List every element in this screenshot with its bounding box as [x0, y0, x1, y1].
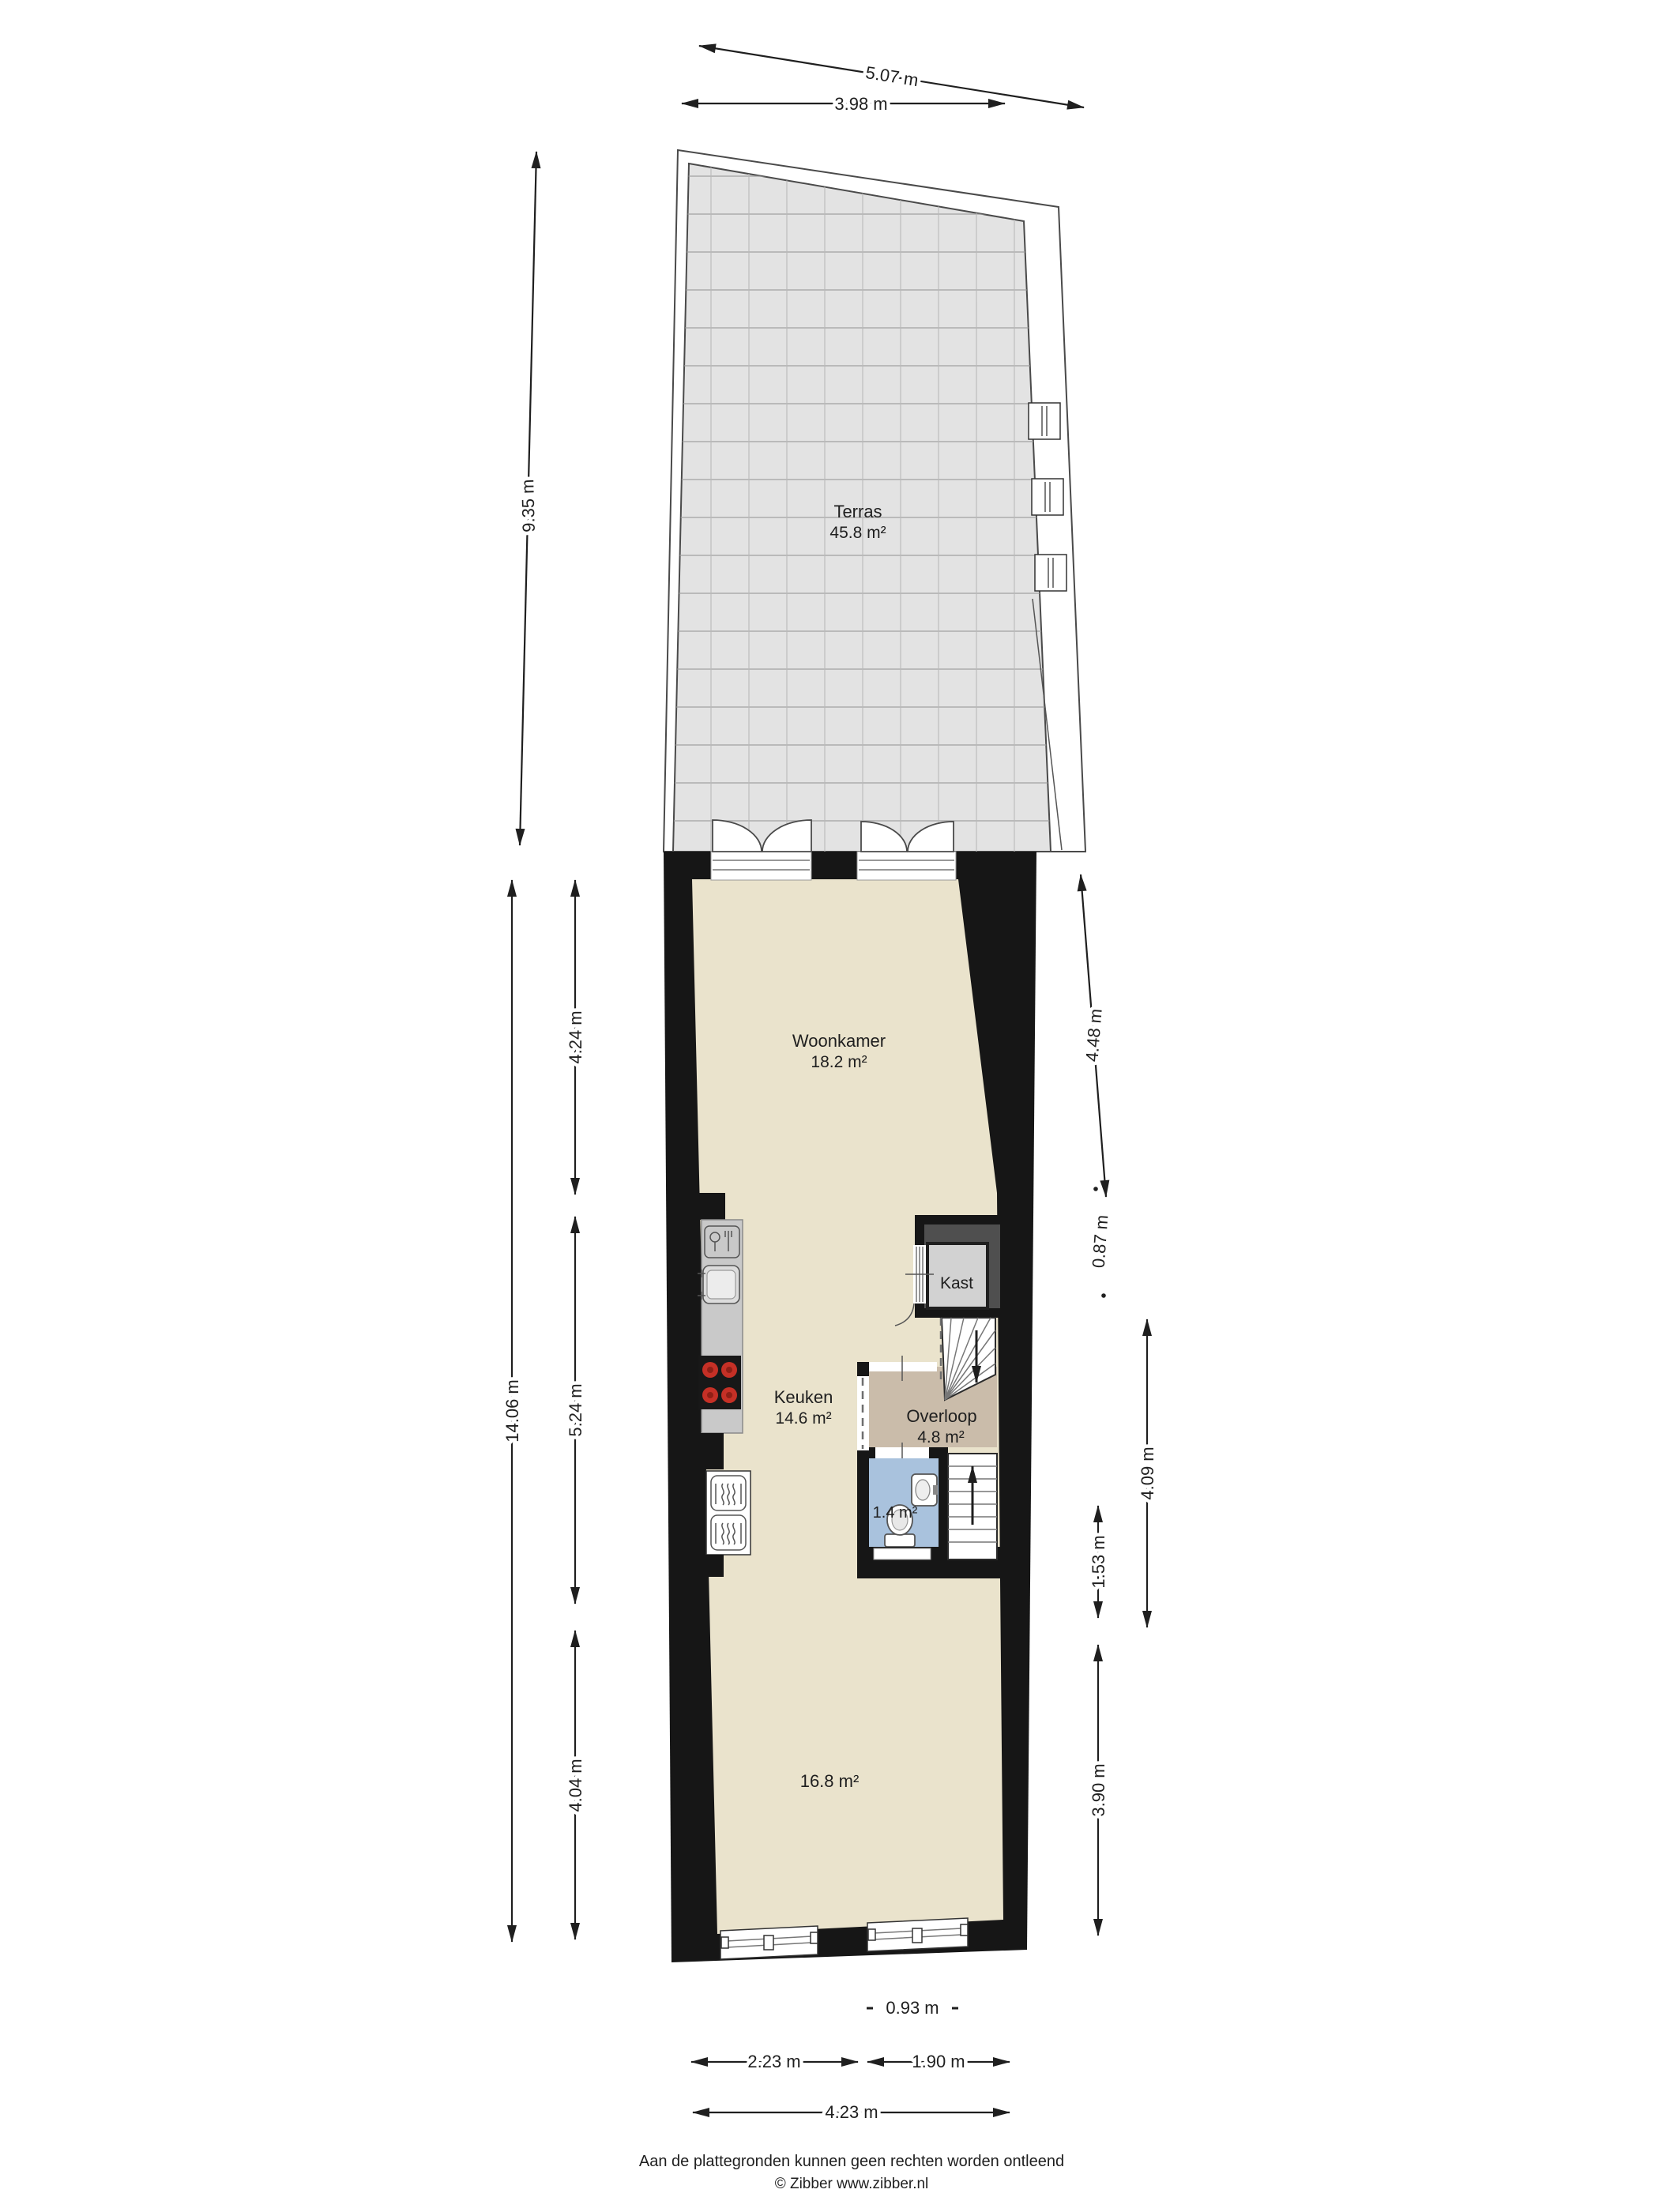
door-threshold-right: [857, 852, 956, 880]
dim-toilet-rechts: 1.53 m: [1089, 1535, 1108, 1588]
stairs-lower: [948, 1454, 997, 1559]
dim-penant-onder: 0.93 m: [886, 1998, 939, 2018]
footer-disclaimer: Aan de plattegronden kunnen geen rechten…: [639, 2153, 1064, 2170]
terrace: Terras 45.8 m²: [664, 150, 1085, 852]
floorplan-page: Terras 45.8 m²: [0, 0, 1659, 2212]
dim-onder-rechts: 1.90 m: [912, 2052, 965, 2071]
keuken-name: Keuken: [774, 1387, 833, 1407]
dim-terras-lengte: 9.35 m: [517, 479, 539, 532]
kast-name: Kast: [940, 1274, 973, 1292]
dim-dot: [1101, 1293, 1106, 1298]
overloop-opening: [869, 1362, 937, 1371]
dim-achterkamer-links: 4.04 m: [566, 1759, 585, 1811]
terras-area: 45.8 m²: [829, 524, 886, 542]
dim-terras-breedte: 3.98 m: [834, 94, 887, 114]
woonkamer-name: Woonkamer: [792, 1031, 886, 1051]
dim-woonkamer-links: 4.24 m: [566, 1010, 585, 1063]
floorplan-svg: Terras 45.8 m²: [0, 0, 1659, 2212]
wall-stub: [705, 1555, 724, 1577]
achterkamer-area: 16.8 m²: [800, 1771, 860, 1791]
window-icon: [867, 1918, 968, 1951]
toilet-area: 1.4 m²: [873, 1504, 918, 1522]
keuken-area: 14.6 m²: [775, 1409, 831, 1428]
window-icon: [1029, 403, 1060, 439]
dim-achterkamer-rechts: 3.90 m: [1089, 1763, 1108, 1816]
dim-woonkamer-rechts: 4.48 m: [1082, 1008, 1105, 1063]
toilet-stairs-wall: [939, 1447, 948, 1561]
dim-kast-rechts: 0.87 m: [1089, 1214, 1112, 1269]
window-icon: [1032, 479, 1063, 515]
dim-totaal-links: 14.06 m: [502, 1379, 522, 1443]
dim-terras-schuin: 5.07 m: [864, 62, 920, 90]
overloop-area: 4.8 m²: [917, 1428, 965, 1446]
footer-copyright: © Zibber www.zibber.nl: [775, 2176, 929, 2192]
dim-dot: [1093, 1187, 1098, 1191]
door-threshold-left: [711, 852, 811, 880]
window-icon: [720, 1926, 818, 1959]
sink-icon: [698, 1266, 739, 1303]
overloop-name: Overloop: [906, 1406, 976, 1426]
wall-stub: [694, 1193, 725, 1220]
dim-onder-links: 2.23 m: [747, 2052, 800, 2071]
dim-keuken-links: 5.24 m: [566, 1383, 585, 1436]
footer: Aan de plattegronden kunnen geen rechten…: [639, 2153, 1064, 2192]
toilet-bottom-sill: [874, 1548, 931, 1559]
terras-name: Terras: [833, 502, 882, 521]
window-icon: [1035, 555, 1066, 591]
dim-onder-totaal: 4.23 m: [825, 2102, 878, 2122]
woonkamer-area: 18.2 m²: [811, 1053, 867, 1071]
dim-trap-rechts: 4.09 m: [1138, 1446, 1157, 1499]
washbasin-icon: [912, 1474, 938, 1506]
appliance-cabinet: [706, 1471, 750, 1555]
wall-stub: [695, 1433, 724, 1469]
cooktop-icon: [698, 1356, 741, 1409]
